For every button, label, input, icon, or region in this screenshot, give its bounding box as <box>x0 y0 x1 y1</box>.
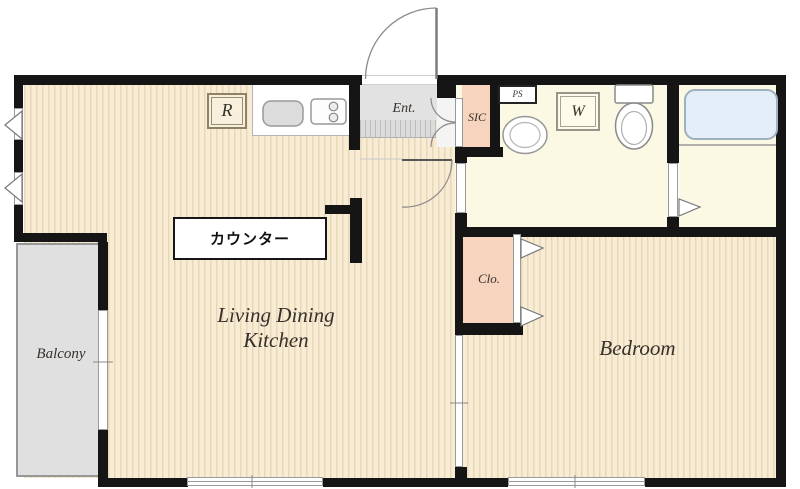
floor-plan: R W PS カウンター <box>0 0 800 489</box>
window-bedroom-south <box>508 477 645 486</box>
counter-callout: カウンター <box>173 217 327 260</box>
wall-segment <box>776 75 786 487</box>
bathroom-area <box>679 85 776 237</box>
genkan-step <box>360 120 436 138</box>
wall-segment <box>14 140 23 172</box>
closet-door-strip <box>513 234 521 323</box>
counter-wall-stub <box>325 205 352 214</box>
pipe-space-label: PS <box>513 89 523 100</box>
wall-segment <box>349 85 360 150</box>
balcony-sliding-door <box>98 310 108 430</box>
window-ldk-south <box>187 477 323 486</box>
wall-segment <box>98 430 108 478</box>
front-door-arc <box>366 8 437 79</box>
wall-segment <box>14 233 107 242</box>
washer-label: W <box>571 102 584 121</box>
wall-segment <box>437 75 786 85</box>
window-left-1 <box>14 108 23 140</box>
ldk-label: Living Dining Kitchen <box>186 303 366 353</box>
ldk-label-line1: Living Dining <box>186 303 366 328</box>
counter-label: カウンター <box>210 228 290 249</box>
wall-segment <box>455 230 463 335</box>
washroom-door <box>456 163 466 213</box>
bathroom-door <box>668 163 678 217</box>
front-door-opening <box>362 75 437 85</box>
kitchen-counter <box>252 83 349 136</box>
pipe-space-box: PS <box>498 85 537 104</box>
wall-segment <box>98 242 108 310</box>
wall-segment <box>98 478 188 487</box>
wall-segment <box>455 148 467 163</box>
wall-segment <box>455 467 467 478</box>
bedroom-label: Bedroom <box>575 336 700 361</box>
refrigerator-box: R <box>207 93 247 129</box>
wall-segment <box>455 323 523 335</box>
refrigerator-label: R <box>222 100 233 122</box>
ldk-bedroom-sliding-door <box>455 335 463 467</box>
wall-segment <box>455 227 786 237</box>
wall-segment <box>437 85 456 98</box>
closet-label: Clo. <box>467 271 511 287</box>
window-left-2 <box>14 172 23 205</box>
washer-box: W <box>556 92 600 131</box>
entrance-label: Ent. <box>382 101 426 118</box>
ldk-label-line2: Kitchen <box>186 328 366 353</box>
balcony-label: Balcony <box>24 345 98 363</box>
wall-segment <box>14 75 362 85</box>
sic-label: SIC <box>461 110 493 124</box>
wall-segment <box>323 478 508 487</box>
wall-segment <box>645 478 786 487</box>
wall-segment <box>667 85 679 163</box>
wall-segment <box>14 85 23 108</box>
